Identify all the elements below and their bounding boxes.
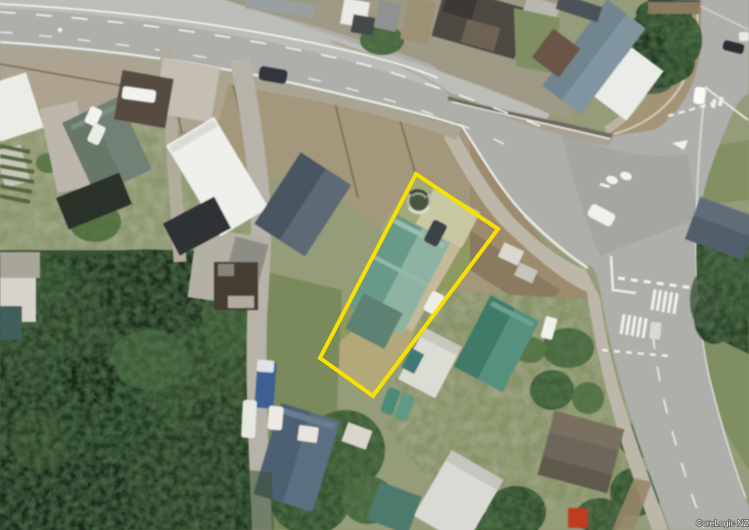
svg-text:CoreLogic NZ: CoreLogic NZ (696, 518, 748, 528)
